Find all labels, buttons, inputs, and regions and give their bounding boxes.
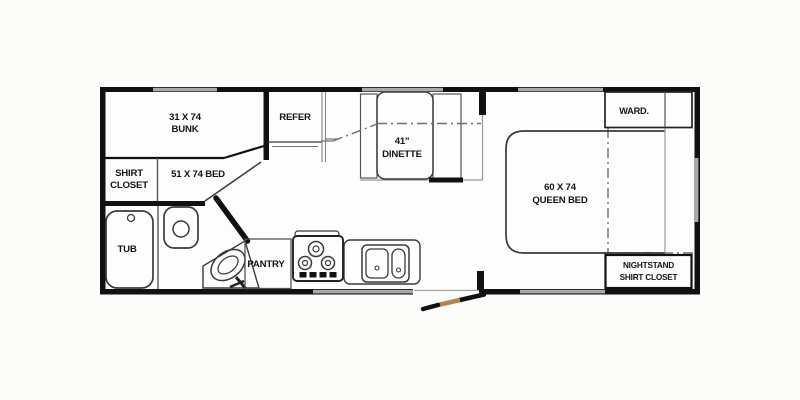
stove-knob	[320, 272, 327, 278]
door-leaf-tip	[423, 305, 438, 309]
door-opening	[413, 288, 479, 297]
window-top-bedroom	[518, 88, 603, 92]
outer-wall-left	[100, 87, 106, 294]
queen-bed-label-line2: QUEEN BED	[532, 195, 588, 206]
bunk-label-line1: 31 X 74	[169, 112, 202, 123]
nightstand-label-line1: NIGHTSTAND	[623, 261, 674, 270]
floorplan-drawing: 31 X 74 BUNK SHIRT CLOSET 51 X 74 BED TU…	[0, 0, 800, 400]
window-right-bedroom	[695, 158, 699, 222]
tub-label: TUB	[117, 244, 136, 255]
bed51-label: 51 X 74 BED	[171, 169, 225, 180]
window-top-bunk	[153, 88, 217, 92]
door-leaf-accent	[438, 300, 460, 305]
bedroom-wall-top	[479, 92, 486, 115]
stove-knob	[310, 272, 317, 278]
window-bottom-kitchen	[313, 290, 413, 294]
pantry-label: PANTRY	[247, 259, 285, 270]
window-bottom-bedroom	[520, 290, 605, 294]
nightstand-label-line2: SHIRT CLOSET	[620, 273, 678, 282]
bathroom-wall	[100, 201, 205, 206]
dinette-label-line1: 41"	[395, 136, 410, 147]
stove-knob	[300, 272, 307, 278]
dinette-end-cabinet	[429, 178, 463, 183]
nightstand-cabinet	[606, 255, 692, 288]
refer-label: REFER	[279, 112, 311, 123]
shirt-closet-label-line2: CLOSET	[110, 180, 148, 191]
bunk-divider-wall	[264, 92, 270, 160]
window-top-dinette	[362, 88, 443, 92]
wardrobe-label: WARD.	[619, 106, 649, 116]
door-jamb-wall	[477, 271, 484, 290]
queen-bed-label-line1: 60 X 74	[544, 182, 577, 193]
floorplan-canvas: 31 X 74 BUNK SHIRT CLOSET 51 X 74 BED TU…	[0, 0, 800, 400]
bunk-label-line2: BUNK	[172, 124, 199, 135]
stove-knob	[330, 272, 337, 278]
dinette-label-line2: DINETTE	[382, 149, 422, 160]
shirt-closet-label-line1: SHIRT	[115, 168, 143, 179]
